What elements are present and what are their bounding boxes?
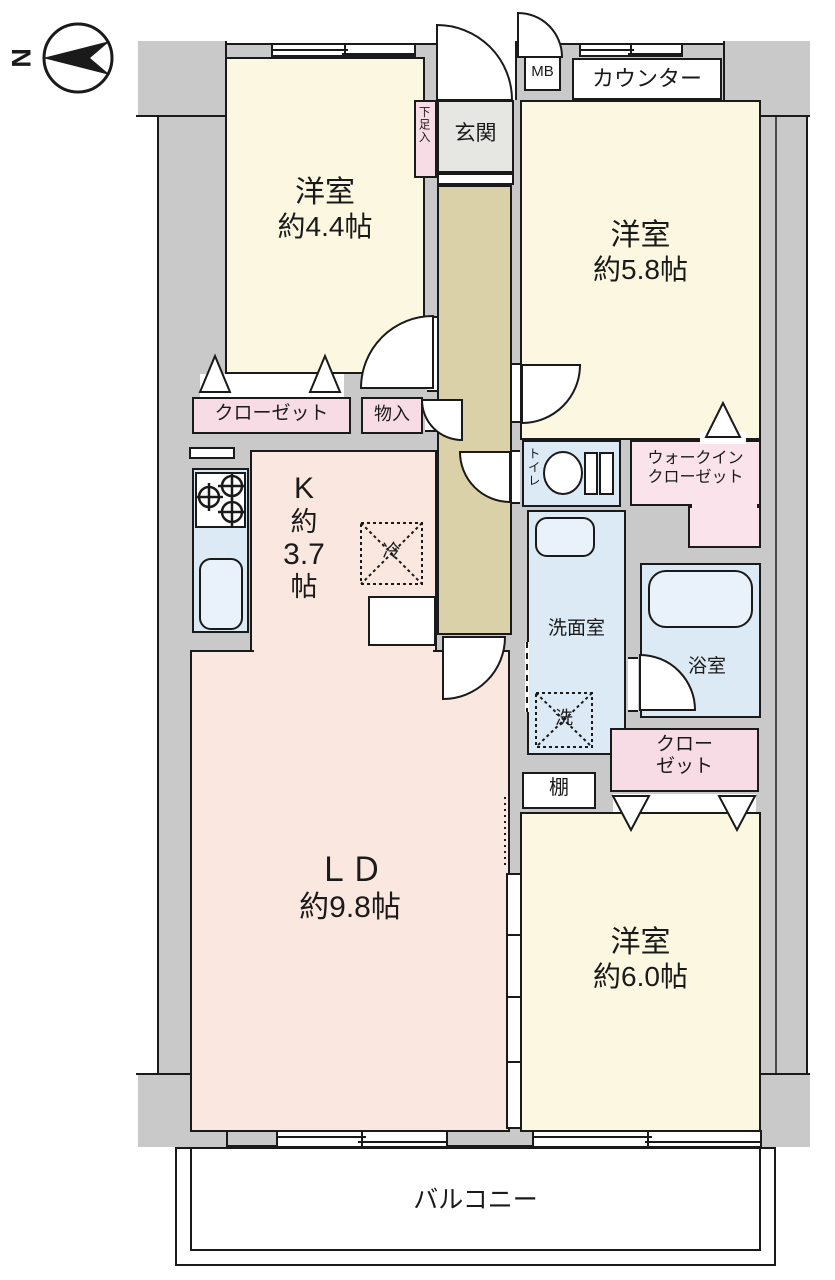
wic-line2: クローゼット (630, 469, 761, 488)
storage-door-gap (425, 399, 437, 432)
room58-label: 洋室 約5.8帖 (520, 218, 761, 286)
kitchen-sink (199, 558, 243, 630)
closet-south-opening (613, 794, 756, 812)
shoe-box-label: 下足入 (416, 106, 430, 144)
stove-box (195, 472, 246, 528)
closet-north-label: クローゼット (192, 403, 351, 425)
bathroom-label: 浴室 (652, 656, 762, 678)
compass-letter: N (6, 48, 36, 68)
walk-in-closet-label: ウォークイン クローゼット (630, 450, 761, 488)
hallway (437, 185, 512, 635)
ld-size: 約9.8帖 (250, 890, 450, 925)
closet-south-line2: ゼット (610, 756, 759, 778)
bathtub (648, 570, 753, 628)
compass-north-icon: N (0, 0, 140, 110)
kitchen-line1: K (272, 472, 336, 507)
storage-label: 物入 (361, 404, 423, 425)
room60-name: 洋室 (520, 925, 761, 960)
kitchen-cupboard (368, 596, 436, 646)
wic-line1: ウォークイン (630, 450, 761, 469)
shelf-label: 棚 (522, 777, 596, 801)
kitchen-line3: 3.7 (272, 538, 336, 573)
sliding-partition (506, 873, 522, 1129)
closet-south-line1: クロー (610, 734, 759, 756)
room44-size: 約4.4帖 (225, 210, 425, 243)
kitchen-label: K 約 3.7 帖 (272, 472, 336, 603)
floor-plan: N (0, 0, 835, 1280)
wall-seam-line (775, 45, 777, 1145)
kitchen-ld-junction (254, 645, 433, 657)
ld-door-gap (443, 637, 503, 648)
room58-door-gap (512, 363, 520, 423)
walk-in-closet-junction (692, 500, 757, 510)
closet-south-label: クロー ゼット (610, 734, 759, 779)
room58-name: 洋室 (520, 218, 761, 253)
washer-label: 洗 (536, 708, 592, 729)
fridge-label: 冷 (361, 541, 422, 562)
toilet-door-gap (512, 450, 520, 504)
room44-name: 洋室 (225, 175, 425, 210)
genkan-label: 玄関 (437, 122, 514, 147)
room44-label: 洋室 約4.4帖 (225, 175, 425, 243)
room58-size: 約5.8帖 (520, 253, 761, 286)
walk-in-closet-lower (688, 506, 761, 548)
bath-door-gap (628, 657, 638, 712)
room44-door-gap (427, 316, 437, 392)
room60-label: 洋室 約6.0帖 (520, 925, 761, 993)
washbasin (535, 517, 595, 557)
left-wall-notch (136, 115, 159, 1075)
washroom-label: 洗面室 (527, 618, 626, 640)
ld-label: ＬＤ 約9.8帖 (250, 851, 450, 925)
corner-block-top-left (138, 41, 227, 117)
genkan-step (437, 173, 514, 185)
balcony-label: バルコニー (175, 1186, 776, 1216)
kitchen-shelf-bar (189, 447, 235, 459)
toilet-label: トイレ (525, 447, 540, 488)
walk-in-closet-opening (700, 432, 746, 444)
ld-name: ＬＤ (250, 851, 450, 890)
counter-label: カウンター (572, 66, 722, 92)
entrance-opening (437, 41, 517, 100)
kitchen-line4: 帖 (272, 572, 336, 603)
closet-north-opening (200, 374, 344, 397)
kitchen-line2: 約 (272, 507, 336, 538)
room60-size: 約6.0帖 (520, 960, 761, 993)
meter-box-label: MB (524, 63, 561, 81)
